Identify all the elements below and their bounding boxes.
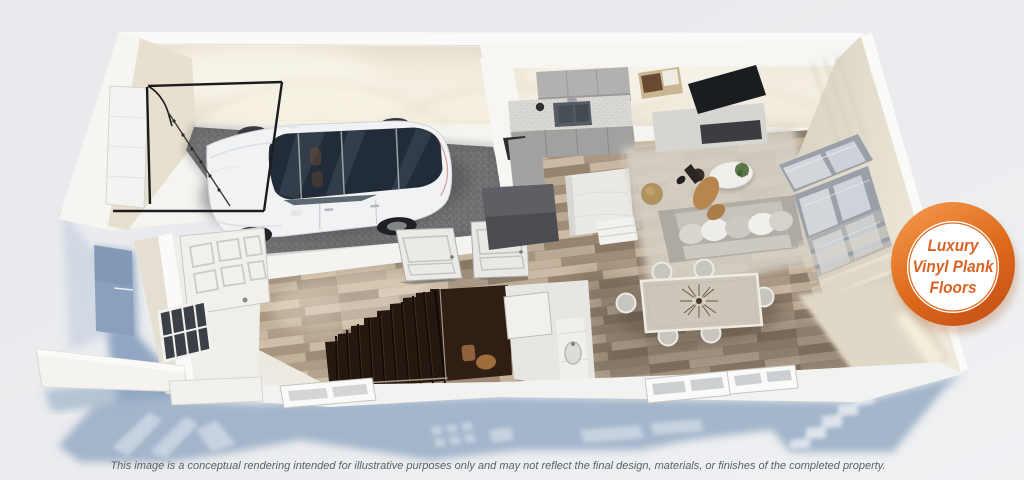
svg-text:Vinyl Plank: Vinyl Plank (913, 257, 995, 276)
svg-text:Luxury: Luxury (928, 236, 980, 255)
svg-text:Floors: Floors (930, 278, 977, 297)
svg-text:This image is a conceptual ren: This image is a conceptual rendering int… (110, 460, 885, 472)
